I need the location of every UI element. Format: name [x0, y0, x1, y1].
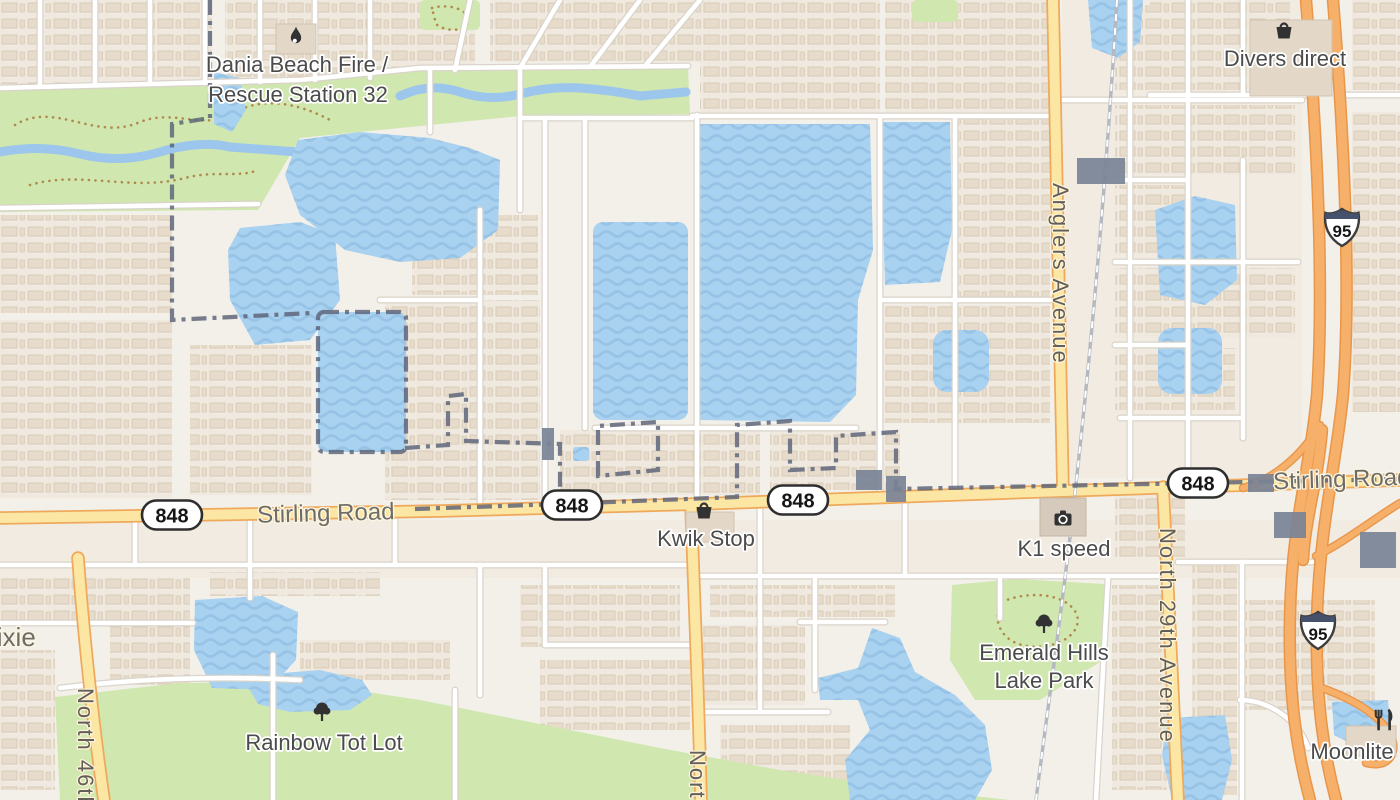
route-848-number: 848: [781, 491, 814, 513]
poi-label: Kwik Stop: [657, 526, 755, 551]
map-canvas[interactable]: 848 848 848 848 95 95 Stirling Road Stir…: [0, 0, 1400, 800]
poi-label: Rainbow Tot Lot: [245, 730, 402, 755]
poi-label: Moonlite: [1310, 739, 1393, 764]
route-848-shield: 848: [142, 501, 202, 530]
small-pool: [573, 447, 589, 461]
route-848-shield: 848: [542, 491, 602, 520]
lake-f: [593, 222, 688, 420]
lake-e: [318, 312, 406, 452]
north-avenue-partial-label: North: [685, 750, 710, 800]
anglers-avenue-label: Anglers Avenue: [1048, 183, 1073, 365]
stirling-road-label-east: Stirling Road: [1273, 464, 1400, 496]
lake-i: [933, 330, 989, 392]
dixie-label: Dixie: [0, 622, 36, 652]
poi-label: Emerald Hills: [979, 640, 1109, 665]
north-29th-avenue-label: North 29th Avenue: [1155, 528, 1180, 744]
lake-g: [700, 124, 873, 422]
poi-label: Divers direct: [1224, 46, 1346, 71]
north-46th-label: North 46th: [73, 688, 98, 800]
poi-label: Rescue Station 32: [208, 82, 388, 107]
route-848-shield: 848: [1168, 469, 1228, 498]
poi-label: Dania Beach Fire /: [206, 52, 389, 77]
stirling-road-label: Stirling Road: [257, 498, 395, 529]
lake-h: [880, 122, 952, 285]
poi-label: Lake Park: [994, 668, 1094, 693]
interstate-95-number: 95: [1333, 222, 1352, 241]
top-green-patch-2: [912, 0, 958, 22]
lake-k: [1155, 196, 1237, 305]
poi-label: K1 speed: [1018, 536, 1111, 561]
interstate-95-number: 95: [1309, 625, 1328, 644]
route-848-number: 848: [555, 496, 588, 518]
route-848-shield: 848: [768, 486, 828, 515]
route-848-number: 848: [1181, 474, 1214, 496]
route-848-number: 848: [155, 506, 188, 528]
